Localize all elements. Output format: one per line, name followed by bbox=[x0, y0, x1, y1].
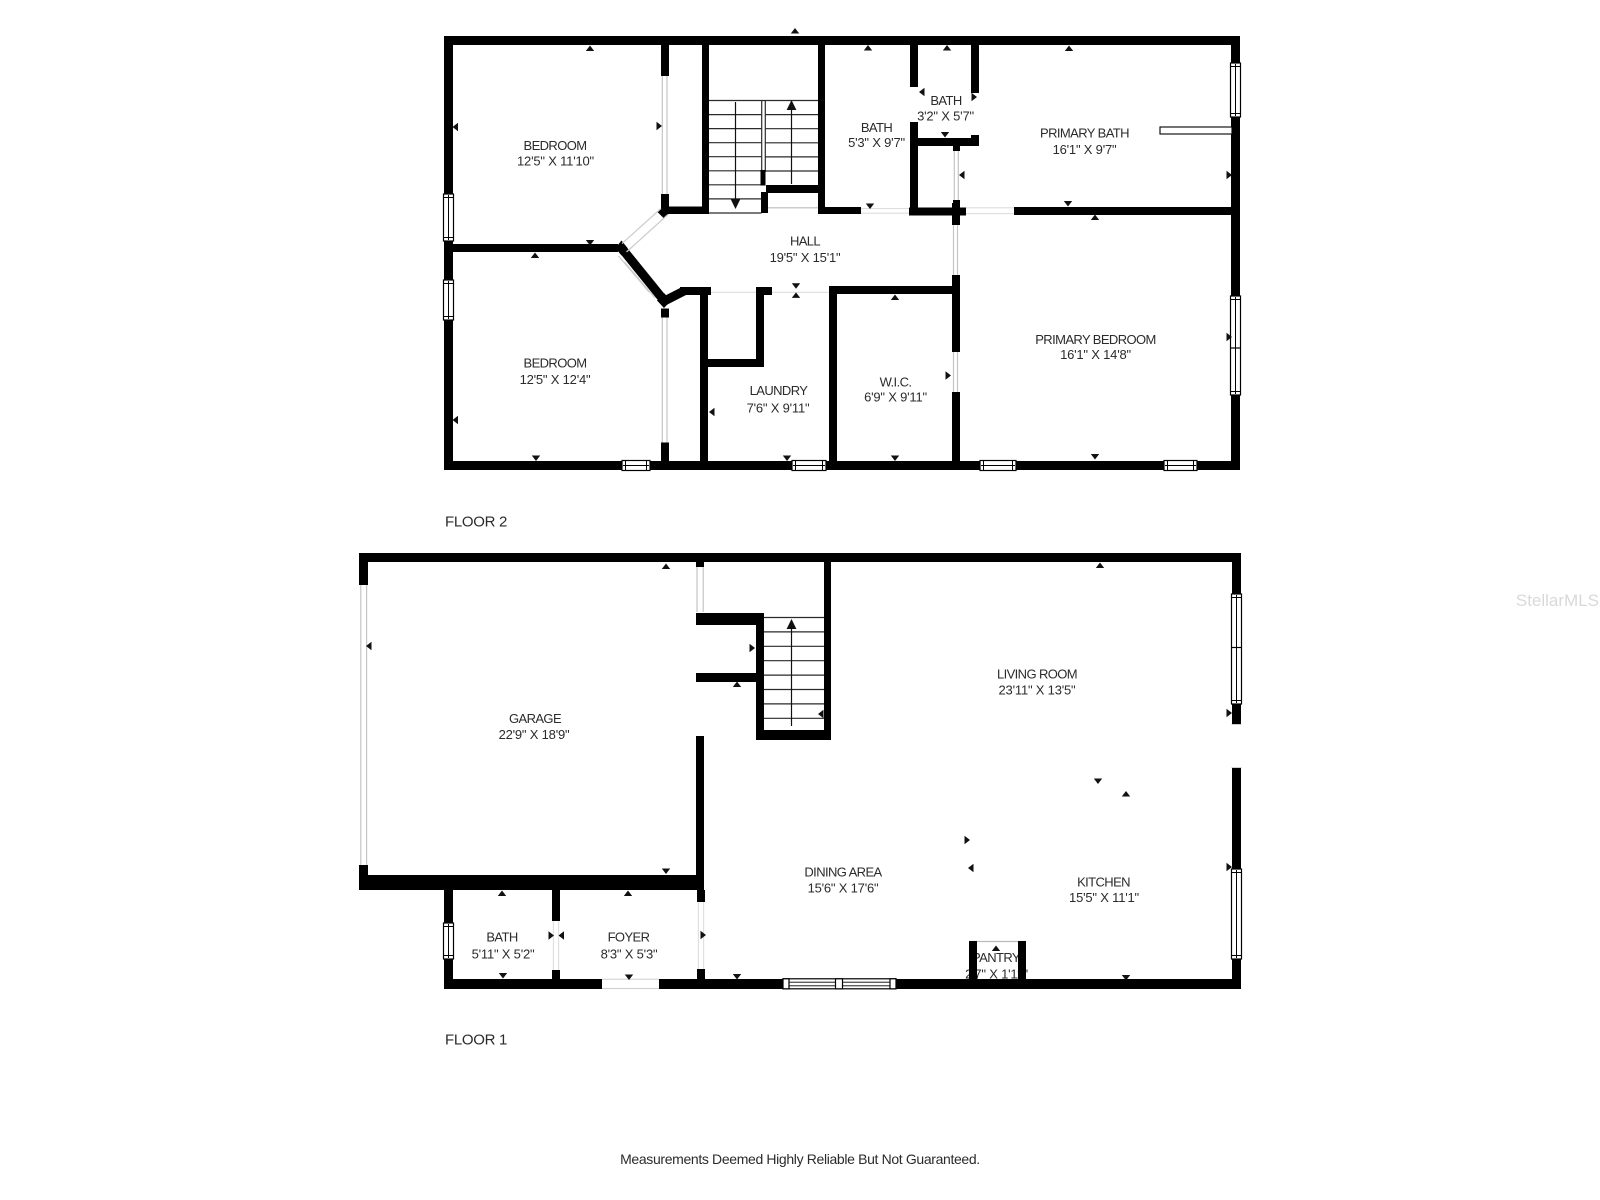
svg-text:5'11" X 5'2": 5'11" X 5'2" bbox=[472, 947, 535, 962]
svg-text:BATH: BATH bbox=[930, 93, 962, 108]
svg-text:Measurements Deemed Highly Rel: Measurements Deemed Highly Reliable But … bbox=[620, 1151, 980, 1167]
svg-text:19'5" X 15'1": 19'5" X 15'1" bbox=[770, 250, 841, 265]
svg-text:LAUNDRY: LAUNDRY bbox=[750, 383, 809, 398]
svg-text:BEDROOM: BEDROOM bbox=[524, 138, 587, 153]
svg-text:HALL: HALL bbox=[790, 234, 820, 249]
svg-text:5'3" X 9'7": 5'3" X 9'7" bbox=[848, 135, 905, 150]
svg-text:FLOOR 2: FLOOR 2 bbox=[445, 514, 507, 531]
svg-text:3'2" X 5'7": 3'2" X 5'7" bbox=[917, 109, 974, 124]
svg-text:23'11" X 13'5": 23'11" X 13'5" bbox=[999, 683, 1077, 698]
svg-text:22'9" X 18'9": 22'9" X 18'9" bbox=[499, 727, 570, 742]
svg-text:GARAGE: GARAGE bbox=[509, 711, 562, 726]
svg-text:BATH: BATH bbox=[861, 120, 893, 135]
svg-text:LIVING ROOM: LIVING ROOM bbox=[997, 667, 1077, 682]
svg-text:16'1" X 9'7": 16'1" X 9'7" bbox=[1053, 142, 1117, 157]
svg-text:7'6" X 9'11": 7'6" X 9'11" bbox=[747, 401, 810, 416]
svg-text:PRIMARY BATH: PRIMARY BATH bbox=[1040, 126, 1129, 141]
svg-text:BEDROOM: BEDROOM bbox=[524, 356, 587, 371]
svg-text:PANTRY: PANTRY bbox=[972, 950, 1021, 965]
svg-text:FLOOR 1: FLOOR 1 bbox=[445, 1032, 507, 1049]
svg-text:FOYER: FOYER bbox=[608, 930, 650, 945]
svg-text:6'9" X 9'11": 6'9" X 9'11" bbox=[864, 390, 927, 405]
svg-text:W.I.C.: W.I.C. bbox=[880, 375, 912, 390]
svg-text:DINING AREA: DINING AREA bbox=[804, 865, 882, 880]
svg-text:12'5" X 12'4": 12'5" X 12'4" bbox=[520, 372, 591, 387]
svg-text:12'5" X 11'10": 12'5" X 11'10" bbox=[517, 154, 595, 169]
svg-text:16'1" X 14'8": 16'1" X 14'8" bbox=[1060, 347, 1131, 362]
svg-text:StellarMLS: StellarMLS bbox=[1516, 591, 1599, 610]
svg-text:8'3" X 5'3": 8'3" X 5'3" bbox=[601, 947, 658, 962]
svg-text:BATH: BATH bbox=[486, 930, 518, 945]
svg-text:15'5" X 11'1": 15'5" X 11'1" bbox=[1069, 890, 1139, 905]
svg-text:KITCHEN: KITCHEN bbox=[1077, 875, 1130, 890]
svg-text:PRIMARY BEDROOM: PRIMARY BEDROOM bbox=[1035, 332, 1156, 347]
svg-text:15'6" X 17'6": 15'6" X 17'6" bbox=[808, 881, 879, 896]
